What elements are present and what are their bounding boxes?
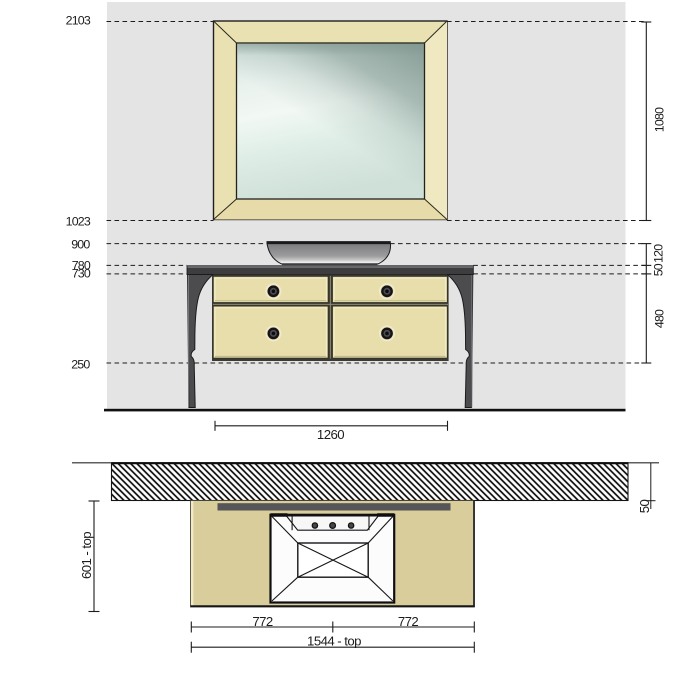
svg-text:480: 480 [653,309,667,328]
svg-text:1544 - top: 1544 - top [307,634,361,649]
svg-text:2103: 2103 [66,14,91,28]
svg-text:1023: 1023 [66,214,91,228]
svg-text:250: 250 [71,357,90,371]
svg-text:601 - top: 601 - top [79,532,94,579]
svg-text:772: 772 [398,614,419,629]
svg-text:730: 730 [72,267,91,281]
svg-text:120: 120 [652,244,666,263]
svg-text:50: 50 [637,500,652,514]
svg-text:1080: 1080 [653,107,667,132]
svg-text:1260: 1260 [317,427,344,442]
svg-text:900: 900 [71,237,90,251]
svg-text:772: 772 [252,614,273,629]
svg-text:50: 50 [652,263,666,276]
